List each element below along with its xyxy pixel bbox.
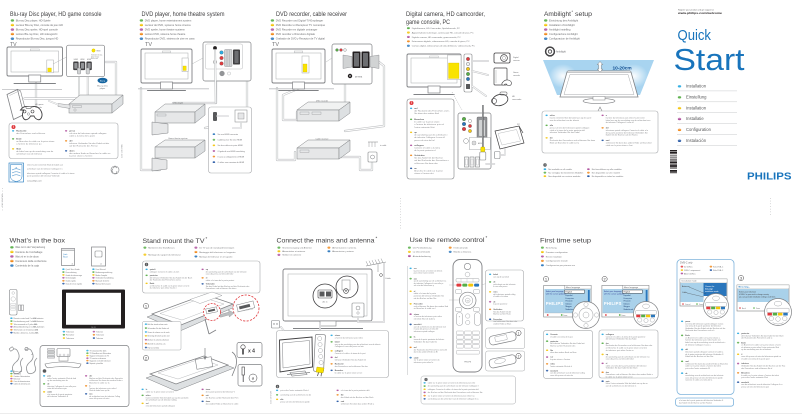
- svg-text:Guide de demarrage: Guide de demarrage: [66, 275, 82, 277]
- svg-text:Fernseher: Fernseher: [66, 335, 75, 337]
- svg-text:Connect the mains and antenna: Connect the mains and antenna: [277, 238, 375, 245]
- svg-text:Magyar: Magyar: [566, 305, 573, 308]
- svg-text:Stromversorgung und Antenne: Stromversorgung und Antenne: [282, 247, 312, 250]
- svg-text:Ruckseite des Fernsehers und s: Ruckseite des Fernsehers und sch: [685, 329, 714, 332]
- svg-text:achterkant van de televisie Co: achterkant van de televisie Collegare il…: [27, 168, 63, 171]
- svg-text:cavo alla presa sul retro del: cavo alla presa sul retro del televi: [606, 358, 635, 361]
- svg-text:Blu-ray Disc speler, HD-spel c: Blu-ray Disc speler, HD-spel console: [16, 27, 59, 31]
- svg-text:Home theatre system: Home theatre system: [168, 137, 187, 140]
- svg-text:Française: Française: [566, 297, 574, 300]
- svg-text:Collegare il cavo alla presa s: Collegare il cavo alla presa sul retr: [335, 345, 364, 348]
- svg-text:x 4: x 4: [248, 349, 255, 355]
- svg-text:presa sul retro del tel: presa sul retro del tel: [414, 139, 435, 142]
- svg-text:Eerste installatie: Eerste installatie: [546, 255, 563, 258]
- svg-text:des Fernsehers und schliessen: des Fernsehers und schliessen Sie d: [741, 367, 772, 370]
- svg-text:dann das andere Ende an Bran: dann das andere Ende an Bran: [550, 351, 576, 354]
- svg-text:Installation: Installation: [686, 84, 707, 89]
- svg-text:Configurazione Ambilight: Configurazione Ambilight: [549, 32, 578, 36]
- svg-text:der Buchse auf der Ruckseite d: der Buchse auf der Ruckseite des Fernseh…: [428, 391, 483, 394]
- svg-text:el cable a la toma de la parte: el cable a la toma de la parte post: [741, 358, 770, 361]
- svg-text:Reproductor Blu-ray Disc, jueg: Reproductor Blu-ray Disc, juegos HD: [16, 37, 59, 41]
- svg-text:Italiano: Italiano: [566, 302, 572, 305]
- svg-text:Done: Done: [563, 315, 567, 317]
- svg-text:Cable/raccher Sie eine HDMI: Cable/raccher Sie eine HDMI: [218, 139, 243, 142]
- svg-text:Sluit de kabel aan op de: Sluit de kabel aan op de: [89, 389, 109, 392]
- svg-text:il cavo alla presa: il cavo alla presa: [493, 285, 508, 288]
- svg-text:PHILIPS: PHILIPS: [464, 362, 472, 364]
- svg-text:Start: Start: [63, 256, 68, 259]
- svg-text:aan op de aansluiti: aan op de aansluiti: [493, 275, 509, 278]
- svg-text:Einrichtung des Ambilight: Einrichtung des Ambilight: [549, 18, 578, 22]
- svg-text:game console, PC: game console, PC: [406, 19, 450, 26]
- svg-text:Verbinden Sie das Kabel mi: Verbinden Sie das Kabel mi: [414, 340, 438, 343]
- svg-text:Atornille la columna a la: Atornille la columna a la: [148, 343, 166, 346]
- svg-text:Not available on all models: Not available on all models: [548, 168, 572, 171]
- svg-text:Conecte el cable a la toma de: Conecte el cable a la toma de la part: [335, 352, 366, 355]
- svg-text:Alimentazione e antenna: Alimentazione e antenna: [332, 247, 357, 250]
- svg-text:Montaje del televisor en el so: Montaje del televisor en el soporte: [199, 255, 233, 258]
- svg-text:Française: Française: [624, 297, 632, 300]
- svg-text:Was ist in der Verpackung: Was ist in der Verpackung: [15, 245, 46, 249]
- svg-text:de televisie Collegare il cavo: de televisie Collegare il cavo a: [685, 343, 711, 346]
- svg-text:PHILIPS: PHILIPS: [91, 327, 96, 329]
- svg-text:le cable sur la prise situee a: le cable sur la prise situee a l'arri: [335, 371, 363, 374]
- svg-text:le cable sur la prise situee a: le cable sur la prise situee a l'arr: [606, 376, 633, 379]
- svg-text:Alleen DVB-C: Alleen DVB-C: [684, 272, 696, 275]
- svg-text:Installatie: Installatie: [686, 116, 704, 121]
- svg-text:Done: Done: [699, 304, 703, 306]
- svg-text:Snelstartgids: Snelstartgids: [66, 277, 76, 280]
- svg-text:camcorder: camcorder: [512, 99, 522, 101]
- svg-text:Einstellung: Einstellung: [686, 94, 707, 99]
- svg-text:2: 2: [518, 354, 520, 358]
- svg-text:Televisie: Televisie: [96, 332, 103, 334]
- svg-text:de achterkant van de televisie: de achterkant van de televisie Colleg: [146, 399, 177, 402]
- svg-text:de televisie Collegare il cavo: de televisie Collegare il cavo all: [606, 121, 634, 124]
- svg-text:cable sur la prise situee a l': cable sur la prise situee a l'arri: [606, 144, 634, 147]
- svg-text:Mode d’emploi: Mode d’emploi: [96, 275, 108, 277]
- svg-text:Einrichtung: Einrichtung: [546, 247, 558, 250]
- svg-text:televisore quindi collegare Co: televisore quindi collegare Conecte el c…: [27, 172, 75, 175]
- svg-text:DVD recorder, cable receiver: DVD recorder, cable receiver: [276, 11, 348, 18]
- svg-text:de kabel aan op de aansluiting: de kabel aan op de aansluiting aan de: [16, 150, 54, 153]
- svg-text:Digitale camera, HD-camcorder,: Digitale camera, HD-camcorder, gameconso…: [412, 36, 461, 39]
- svg-text:Hrvatski: Hrvatski: [566, 300, 573, 303]
- svg-text:Lecteur Blu-ray Disc, console: Lecteur Blu-ray Disc, console de jeux HD: [16, 23, 63, 27]
- svg-text:for DVB-C: for DVB-C: [684, 266, 693, 269]
- svg-text:Il telecomando: Il telecomando: [454, 247, 469, 250]
- svg-text:HDMI: HDMI: [97, 51, 101, 53]
- svg-text:3139 138 07486: 3139 138 07486: [271, 391, 273, 404]
- svg-text:Bedienungsanleitung: Bedienungsanleitung: [96, 271, 113, 274]
- svg-text:Vissez la colonne sur le socle: Vissez la colonne sur le socle: [148, 331, 170, 334]
- svg-text:televisore quindi collegar: televisore quindi collegar: [414, 330, 435, 333]
- svg-text:De TV aan de standaard bevesti: De TV aan de standaard bevestigen: [199, 247, 235, 250]
- svg-text:with the cursor up/down: with the cursor up/down: [546, 293, 566, 296]
- svg-text:Branchez le cable sur la: Branchez le cable sur la: [89, 381, 110, 384]
- svg-text:del televisor Verbinden S: del televisor Verbinden S: [47, 395, 69, 398]
- svg-text:Verbinden Sie das Kabel mit de: Verbinden Sie das Kabel mit der Buch: [606, 367, 638, 370]
- svg-text:del televisor Verbinden Sie da: del televisor Verbinden Sie das Kabe: [606, 338, 637, 341]
- svg-text:Reproductor DVD, sistema de ci: Reproductor DVD, sistema de cine en casa: [145, 37, 195, 41]
- svg-text:collegare Conecte el cable a l: collegare Conecte el cable a la tom: [150, 270, 180, 273]
- svg-text:Manual del usuario: Manual del usuario: [96, 284, 111, 286]
- svg-text:English: English: [624, 292, 631, 294]
- svg-text:des Fernsehers und schliesse: des Fernsehers und schliesse: [16, 132, 46, 135]
- svg-text:x1: x1: [100, 264, 102, 266]
- svg-text:Fotocamera digitale, videocame: Fotocamera digitale, videocamera HD, con…: [412, 40, 470, 43]
- svg-text:Afstandsbediening: Afstandsbediening: [413, 255, 432, 258]
- svg-text:le cable sur la prise situee: le cable sur la prise situee: [414, 121, 440, 124]
- svg-text:Menu language: Menu language: [566, 287, 581, 289]
- svg-text:cable sur la prise situee a l': cable sur la prise situee a l'arriere: [146, 390, 174, 393]
- svg-text:Cancel: Cancel: [685, 304, 691, 306]
- svg-text:de la parte posterior del tele: de la parte posterior del televisor V: [206, 390, 236, 393]
- svg-text:Ambilight instelling: Ambilight instelling: [549, 27, 571, 31]
- svg-text:auf der Ruckseite des Fernsehe: auf der Ruckseite des Fernsehers u: [414, 159, 449, 162]
- svg-text:★: ★: [15, 167, 17, 170]
- svg-text:Español: Español: [566, 294, 573, 297]
- svg-text:an Branchez le cable sur l: an Branchez le cable sur l: [414, 307, 436, 310]
- svg-text:collegare Conecte el cable a l: collegare Conecte el cable a la toma de …: [428, 388, 480, 391]
- svg-text:retro del televisore quindi co: retro del televisore quindi collegare: [146, 404, 175, 407]
- svg-text:Niet beschikbaar op alle model: Niet beschikbaar op alle modellen: [592, 168, 622, 171]
- svg-text:Lettore DVD, sistema home thea: Lettore DVD, sistema home theatre: [145, 32, 186, 36]
- svg-text:10-20cm: 10-20cm: [613, 66, 632, 72]
- svg-text:Mando a distancia, 2 pilas AAA: Mando a distancia, 2 pilas AAA: [14, 332, 40, 335]
- svg-text:!: !: [13, 125, 14, 129]
- svg-text:das Kabel mit der Buchse auf d: das Kabel mit der Buchse auf der Ruckse: [679, 401, 712, 404]
- svg-text:Montaggio del televisore sul s: Montaggio del televisore sul supporto: [199, 251, 236, 254]
- svg-text:aansluiting aan de achterkant: aansluiting aan de achterkant van de tel…: [428, 398, 480, 401]
- svg-text:Appareil photo numerique, came: Appareil photo numerique, camescope HD, …: [412, 31, 474, 34]
- svg-text:Bevestig de kolom op de voet: Bevestig de kolom op de voet: [148, 335, 171, 338]
- svg-text:Installation: Installation: [686, 105, 707, 110]
- svg-text:PHILIPS: PHILIPS: [546, 301, 564, 306]
- svg-text:DVD Recorder en digitale ontva: DVD Recorder en digitale ontvanger: [276, 27, 318, 31]
- svg-text:l'autre extremite Sluit: l'autre extremite Sluit: [414, 126, 435, 129]
- svg-text:schliessen Sie dann das andere: schliessen Sie dann das andere Ende a: [341, 402, 375, 405]
- svg-text:Televisor: Televisor: [96, 338, 103, 340]
- svg-text:PHILIPS: PHILIPS: [747, 172, 792, 183]
- svg-text:Stand mount the TV: Stand mount the TV: [143, 238, 205, 245]
- svg-text:a la toma de la parte posterio: a la toma de la parte posterior del t: [341, 389, 371, 392]
- svg-text:*: *: [376, 236, 378, 241]
- svg-text:Start: Start: [674, 42, 745, 77]
- svg-text:Ende an Branchez le cable sur: Ende an Branchez le cable sur la: [550, 142, 580, 144]
- svg-text:situee a l'arriere du t: situee a l'arriere du t: [414, 172, 434, 175]
- svg-text:retro del televisore quin: retro del televisore quin: [47, 387, 67, 390]
- svg-text:!: !: [146, 263, 147, 267]
- svg-text:Blu-ray Disc player, HD game c: Blu-ray Disc player, HD game console: [10, 11, 102, 18]
- svg-text:Verbinden Sie das: Verbinden Sie das: [91, 55, 103, 57]
- svg-text:Blu-ray: Blu-ray: [100, 80, 105, 82]
- svg-text:la prise situee a l'arriere: la prise situee a l'arriere: [69, 155, 93, 158]
- svg-text:TV: TV: [145, 42, 152, 48]
- svg-text:AC in: AC in: [323, 301, 328, 304]
- svg-text:Afstandsbediening en 2 AAA-bat: Afstandsbediening en 2 AAA-batterijen: [14, 326, 45, 329]
- svg-text:Buchse auf: Buchse auf: [91, 58, 99, 60]
- svg-text:PHILIPS: PHILIPS: [604, 301, 622, 306]
- svg-text:sul retro del televisore quind: sul retro del televisore quindi collegar…: [69, 132, 107, 135]
- svg-text:Montieren des Standfusses: Montieren des Standfusses: [148, 247, 175, 250]
- svg-text:das Kabel mit der Buchse auf d: das Kabel mit der Buchse auf der Ruck: [341, 396, 374, 399]
- svg-text:puis reliez l'autre extremite: puis reliez l'autre extremite Sluit d: [280, 389, 308, 392]
- svg-text:reliez l'autre extremite Sluit: reliez l'autre extremite Sluit de kabel …: [27, 164, 63, 167]
- svg-text:aan de achterkant van de telev: aan de achterkant van de televisie C: [606, 384, 637, 387]
- svg-text:Quick Start Guide: Quick Start Guide: [66, 268, 80, 271]
- svg-text:Fernsehers und schliessen Sie: Fernsehers und schliessen Sie dann: [206, 287, 237, 290]
- svg-text:x1: x1: [72, 264, 74, 266]
- svg-text:Alimentacion y antena: Alimentacion y antena: [332, 250, 354, 253]
- svg-text:Of gebruik een HDMI aansluitin: Of gebruik een HDMI aansluiting: [218, 150, 245, 153]
- svg-text:Via des cables via prise HDMI: Via des cables via prise HDMI: [218, 144, 244, 147]
- svg-text:Via een HDMI connector: Via een HDMI connector: [218, 133, 239, 136]
- svg-text:Instalación: Instalación: [686, 138, 707, 143]
- svg-text:Cable de alimentacion: Cable de alimentacion: [14, 383, 31, 386]
- svg-text:with the cursor up/down: with the cursor up/down: [604, 293, 624, 296]
- svg-text:Non disponibile su tutti i mod: Non disponibile su tutti i modelli: [592, 172, 621, 175]
- svg-text:der Ruckseite des Fernsehers u: der Ruckseite des Fernsehers und sc: [741, 337, 772, 340]
- svg-text:televiseur puis reliez l'a: televiseur puis reliez l'a: [414, 361, 434, 364]
- svg-text:User Manual: User Manual: [96, 269, 107, 271]
- svg-text:DVD recorder e Ricevitore digi: DVD recorder e Ricevitore digitale: [276, 32, 316, 36]
- svg-text:presa sul retro del televisore: presa sul retro del televisore quindi: [280, 400, 310, 403]
- svg-text:la prise situee a l'arriere: la prise situee a l'arriere: [550, 358, 570, 361]
- svg-text:des Fernsehers und schliessen: des Fernsehers und schliessen Sie dan: [335, 365, 368, 368]
- svg-text:DVD Recorder und Digital-TV-Em: DVD Recorder und Digital-TV-Empfanger: [276, 18, 324, 22]
- svg-text:Gebruikershandleiding: Gebruikershandleiding: [96, 278, 114, 280]
- svg-text:schliessen Sie dann das: schliessen Sie dann das: [414, 163, 438, 165]
- svg-text:Television: Television: [66, 332, 74, 334]
- svg-text:Conecte el cable a la toma de: Conecte el cable a la toma de la: [685, 379, 713, 382]
- svg-text:console: console: [35, 107, 43, 109]
- svg-text:aansluiting aan de achterkant: aansluiting aan de achterkant van de: [280, 394, 311, 397]
- svg-text:Ruckseite: Ruckseite: [16, 130, 27, 133]
- svg-text:de la parte posterior d: de la parte posterior d: [414, 149, 436, 152]
- svg-text:Contenu de l’emballage: Contenu de l’emballage: [15, 250, 43, 254]
- svg-text:console: console: [513, 75, 521, 77]
- svg-text:achterkant van de televisie: achterkant van de televisie: [16, 153, 43, 156]
- svg-text:Televiseur: Televiseur: [66, 338, 74, 340]
- svg-text:Back: Back: [742, 308, 746, 310]
- svg-text:a l'arriere du televiseur puis: a l'arriere du televiseur puis reliez: [335, 336, 363, 339]
- svg-text:du televiseur puis reliez l'au: du televiseur puis reliez l'autre e: [150, 287, 177, 290]
- svg-text:Kurzanleitung: Kurzanleitung: [66, 271, 77, 274]
- svg-text:Sólo DVB-C: Sólo DVB-C: [713, 270, 724, 272]
- svg-text:an Branchez le cable sur la pr: an Branchez le cable sur la prise situee: [16, 140, 55, 143]
- svg-text:cable a la toma de la parte: cable a la toma de la parte: [69, 135, 96, 138]
- svg-text:Register your product and get: Register your product and get support at: [678, 9, 714, 12]
- svg-text:op de aansluiting aan de achte: op de aansluiting aan de achterkant: [741, 348, 771, 351]
- svg-text:Bolt the stand column onto: Bolt the stand column onto: [148, 323, 168, 326]
- svg-text:English: English: [566, 292, 573, 294]
- svg-text:op de aansluiting aan de: op de aansluiting aan de: [47, 379, 68, 382]
- svg-text:Blu-ray Disc player, HD-Spiele: Blu-ray Disc player, HD-Spiele: [16, 18, 51, 22]
- svg-text:cable a la toma de la parte po: cable a la toma de la parte posteri: [206, 279, 235, 282]
- svg-text:el cable a la toma: el cable a la toma: [493, 295, 509, 298]
- svg-text:Lecteur de DVD, systeme home c: Lecteur de DVD, systeme home cinema: [145, 23, 191, 27]
- svg-text:Magyar: Magyar: [624, 305, 631, 308]
- svg-text:Antenna: Antenna: [682, 285, 690, 288]
- svg-text:Buchse auf der Ruck: Buchse auf der Ruck: [493, 313, 511, 316]
- svg-text:du televiseur puis reliez l'au: du televiseur puis reliez l'autre ex: [606, 349, 634, 352]
- svg-text:a l'arriere du televiseur puis: a l'arriere du televiseur puis rel: [414, 123, 444, 126]
- svg-text:Kabel mit der Buchse auf der R: Kabel mit der Buchse auf der Rucks: [606, 134, 638, 137]
- svg-text:www.philips.com: www.philips.com: [27, 181, 42, 183]
- svg-text:Telecommande et 2 piles AAA: Telecommande et 2 piles AAA: [14, 323, 39, 326]
- svg-text:Branchez le cable sur la prise: Branchez le cable sur la prise: [414, 170, 443, 173]
- svg-text:No disponible en todos los mod: No disponible en todos los modelos: [592, 175, 624, 178]
- svg-text:der Ruckseite des Fernsehers u: der Ruckseite des Fernsehers und s: [414, 110, 450, 113]
- svg-text:Configuracion de Ambilight: Configuracion de Ambilight: [549, 37, 580, 41]
- svg-text:PC: PC: [517, 124, 520, 126]
- svg-text:DVB-C uniquement: DVB-C uniquement: [684, 269, 701, 272]
- svg-text:Montage du support du televise: Montage du support du televiseur: [148, 254, 181, 257]
- svg-text:Nur verfugbar bei bestimmten M: Nur verfugbar bei bestimmten Modellen: [548, 172, 583, 175]
- svg-text:Menu language: Menu language: [624, 287, 639, 289]
- svg-text:Stekker en antenne: Stekker en antenne: [282, 254, 302, 257]
- svg-text:Sluit: Sluit: [16, 148, 21, 151]
- svg-text:La telecommande: La telecommande: [413, 251, 431, 254]
- svg-text:HD game: HD game: [35, 104, 44, 106]
- svg-text:DVD player, home entertainment: DVD player, home entertainment system: [145, 18, 192, 22]
- svg-text:puis reliez l'autre extrem: puis reliez l'autre extrem: [414, 272, 435, 275]
- svg-text:3139 138 07486: 3139 138 07486: [2, 194, 4, 207]
- svg-text:Configuracion por primera vez: Configuracion por primera vez: [546, 264, 575, 267]
- svg-text:parte posterior del televisor: parte posterior del televisor Verbinde: [27, 175, 60, 178]
- svg-text:DVD speler, home theatre syste: DVD speler, home theatre systeem: [145, 27, 185, 31]
- svg-text:Wat zit er in de doos: Wat zit er in de doos: [15, 254, 39, 258]
- svg-text:Mando a distancia: Mando a distancia: [454, 251, 473, 254]
- svg-text:puis reliez l'autre extremite: puis reliez l'autre extremite Sl: [685, 367, 710, 370]
- svg-text:TV: TV: [272, 42, 279, 48]
- svg-text:mit der Buchse auf der Ruc: mit der Buchse auf der Ruc: [414, 297, 437, 300]
- svg-text:de televisie Collegare il cavo: de televisie Collegare il cavo all: [414, 136, 445, 139]
- svg-text:Nederlands: Nederlands: [624, 308, 634, 311]
- svg-text:Done: Done: [756, 308, 760, 310]
- svg-text:Avvitare la colonna alla base: Avvitare la colonna alla base: [148, 339, 170, 342]
- svg-text:Configuration: Configuration: [686, 127, 712, 132]
- svg-text:setup: setup: [575, 11, 592, 18]
- svg-text:Contenido de la caja: Contenido de la caja: [15, 263, 39, 267]
- svg-text:x1: x1: [31, 354, 33, 356]
- svg-text:www.philips.com/welcome: www.philips.com/welcome: [677, 11, 723, 15]
- svg-text:Ambilight: Ambilight: [556, 51, 566, 54]
- svg-text:sur la prise situee a l'arrier: sur la prise situee a l'arriere du telev…: [428, 394, 475, 397]
- svg-text:Digital: Digital: [513, 56, 519, 59]
- svg-text:you can go inside installation: you can go inside installation settings …: [739, 295, 776, 298]
- svg-text:dann das andere Ende an Br: dann das andere Ende an Br: [414, 351, 439, 354]
- svg-text:cavo alla presa sul retro del: cavo alla presa sul retro del telev: [206, 273, 234, 276]
- svg-text:Guia de inicio rapido: Guia de inicio rapido: [66, 284, 82, 286]
- svg-text:Lettore Blu-ray Disc, HD video: Lettore Blu-ray Disc, HD videogiochi: [16, 32, 58, 36]
- svg-text:Done: Done: [621, 315, 625, 317]
- svg-text:cavo alla presa sul retro de: cavo alla presa sul retro de: [550, 374, 573, 377]
- svg-text:puis reliez l'autre extremite: puis reliez l'autre extremite Sluit: [741, 376, 768, 379]
- svg-text:Premiere configuration: Premiere configuration: [546, 251, 569, 254]
- svg-text:*: *: [206, 236, 208, 241]
- svg-text:das andere Ende an Branchez le: das andere Ende an Branchez le cable: [206, 402, 239, 405]
- svg-text:Il cavo ai collegamento di HDM: Il cavo ai collegamento di HDMI: [218, 155, 245, 158]
- svg-text:der Buchse auf der Ruckseite d: der Buchse auf der Ruckseite des Fern: [206, 396, 239, 399]
- svg-text:Schrauben Sie die Saule auf: Schrauben Sie die Saule auf: [148, 327, 170, 330]
- svg-text:das andere Ende an Branchez le: das andere Ende an Branchez le cable sur: [69, 152, 111, 155]
- svg-text:aan de achterkant van de telev: aan de achterkant van de televisi: [550, 119, 580, 122]
- svg-text:First time setup: First time setup: [540, 238, 591, 245]
- svg-text:Hrvatski: Hrvatski: [624, 300, 631, 303]
- svg-text:el cable a la toma de la par: el cable a la toma de la par: [550, 335, 573, 338]
- svg-text:Camara digital, videocamara de: Camara digital, videocamara de alta defi…: [412, 45, 476, 48]
- svg-text:*: *: [486, 235, 488, 240]
- svg-text:Cable: Cable: [385, 278, 391, 280]
- svg-text:Alimentation et antenne: Alimentation et antenne: [282, 250, 306, 253]
- svg-text:DVB-C only: DVB-C only: [680, 262, 693, 265]
- svg-text:Solo DVB-C: Solo DVB-C: [713, 267, 724, 269]
- svg-text:Configurazione iniziale: Configurazione iniziale: [546, 260, 569, 263]
- svg-text:Non disponible sur certains mo: Non disponible sur certains modeles: [548, 175, 580, 178]
- svg-text:Ambilight: Ambilight: [544, 11, 571, 18]
- svg-text:camera: camera: [513, 60, 521, 62]
- svg-text:Fije los tornillos: Fije los tornillos: [148, 346, 160, 349]
- svg-text:televisor Verbinden Sie das Ka: televisor Verbinden Sie das Kabel mit de…: [69, 142, 109, 145]
- svg-text:Sie dann das andere End: Sie dann das andere End: [414, 112, 439, 115]
- svg-text:Remote control and 2 x AAA bat: Remote control and 2 x AAA batteries: [14, 317, 44, 320]
- svg-text:to cable: to cable: [380, 144, 386, 147]
- svg-text:Kabel mit der Buchse auf der R: Kabel mit der Buchse auf der Ruc: [685, 355, 713, 358]
- svg-text:player: player: [100, 88, 106, 90]
- svg-text:Installation d’Ambilight: Installation d’Ambilight: [549, 23, 575, 27]
- svg-text:DVD Recorder et Recepteur TV n: DVD Recorder et Recepteur TV numerique: [276, 23, 326, 27]
- svg-text:Game: Game: [513, 72, 519, 74]
- svg-text:Grabador de DVD y Receptor de: Grabador de DVD y Receptor de TV digital: [276, 37, 326, 41]
- svg-text:DVD player, home theatre syste: DVD player, home theatre system: [142, 11, 225, 18]
- svg-text:cavo alla presa sul retro: cavo alla presa sul retro: [89, 397, 109, 400]
- svg-text:installation mode: installation mode: [705, 290, 719, 293]
- svg-text:Digital camera, HD camcorder,: Digital camera, HD camcorder,: [406, 11, 485, 18]
- svg-text:Blu-ray Disc: Blu-ray Disc: [97, 85, 108, 87]
- svg-text:Soporte y tornillos: Soporte y tornillos: [90, 362, 104, 365]
- svg-text:Televisore: Televisore: [96, 335, 104, 337]
- svg-text:a l'arriere du televiseur pu: a l'arriere du televiseur pu: [16, 143, 42, 146]
- svg-text:Contenuto della confezione: Contenuto della confezione: [15, 259, 47, 263]
- svg-text:Digitalkamera, HD-Camcorder, S: Digitalkamera, HD-Camcorder, Spielekonso…: [412, 27, 461, 30]
- svg-text:Sie das Kabel mit der Buchse: Sie das Kabel mit der Buchse: [414, 157, 443, 160]
- svg-text:Use the remote control: Use the remote control: [410, 237, 486, 244]
- svg-text:O utilice una conexion de HDMI: O utilice una conexion de HDMI: [218, 161, 245, 164]
- svg-text:Die Fernbedienung: Die Fernbedienung: [413, 247, 432, 250]
- svg-text:What's in the box: What's in the box: [10, 238, 66, 245]
- svg-text:der Ruckseite des Fernsehers u: der Ruckseite des Fernsehers und sc: [150, 279, 181, 282]
- svg-text:de aansluiting aan de achterka: de aansluiting aan de achterkant v: [414, 134, 448, 137]
- svg-text:!: !: [545, 163, 546, 167]
- svg-text:Telemando con 2 baterias AAA: Telemando con 2 baterias AAA: [14, 329, 39, 332]
- svg-text:Installation mode: Installation mode: [682, 280, 698, 283]
- svg-text:la parte posterior: la parte posterior: [493, 303, 508, 306]
- svg-text:televisor Verbinden Sie das Ka: televisor Verbinden Sie das Kabel mit: [335, 358, 367, 361]
- svg-text:auf der Ruckseite des Fernse: auf der Ruckseite des Fernse: [69, 145, 98, 148]
- svg-text:sul retro del televisore q: sul retro del televisore q: [414, 284, 434, 287]
- svg-text:Buchse auf der Ruckseite des: Buchse auf der Ruckseite des: [550, 344, 575, 347]
- svg-text:Fernbedienung und 2 x AAA-Batt: Fernbedienung und 2 x AAA-Batterien: [14, 320, 44, 323]
- svg-text:andere Ende an Bran: andere Ende an Bran: [493, 323, 511, 326]
- svg-text:Español: Español: [624, 294, 631, 297]
- svg-text:televisor Verbinden Sie das Ka: televisor Verbinden Sie das Kabel: [550, 131, 580, 134]
- svg-text:!: !: [411, 101, 412, 105]
- svg-text:Italiano: Italiano: [624, 302, 630, 305]
- svg-text:cable sur la prise situee a l': cable sur la prise situee a l'arriere du…: [428, 382, 476, 385]
- svg-text:HDMI: HDMI: [80, 59, 85, 61]
